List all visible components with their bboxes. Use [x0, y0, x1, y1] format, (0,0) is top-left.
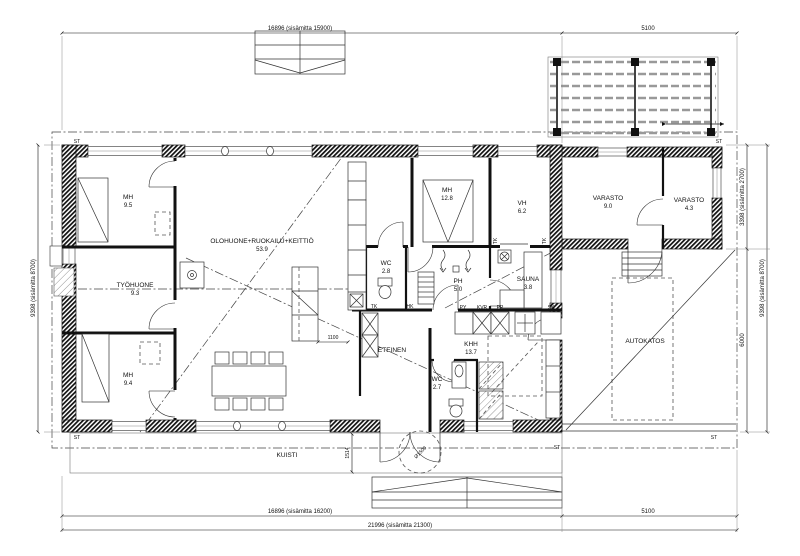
room-area: 9.5 — [124, 203, 133, 209]
room-label: MH — [123, 372, 133, 379]
room-label: VARASTO — [593, 195, 623, 202]
room-label: WC — [381, 260, 392, 267]
marker-hk: HK — [407, 304, 415, 310]
windows — [63, 147, 721, 431]
dim-top-main: 16896 (sisämitta 15900) — [268, 26, 332, 32]
shower — [441, 250, 445, 270]
room-area: 9.4 — [124, 381, 133, 387]
washbasin-counter — [452, 362, 466, 388]
chair — [251, 352, 265, 364]
chair — [215, 398, 229, 410]
night-table — [140, 342, 160, 364]
marker-sk: SK — [548, 305, 555, 311]
dim-right-total: 9398 (sisämitta 8700) — [760, 259, 766, 317]
marker-kvr: KVR — [477, 305, 488, 311]
room-label: WC — [432, 376, 443, 383]
floor-drain — [453, 266, 459, 272]
window-post — [222, 147, 229, 156]
marker-tk: TK — [371, 304, 378, 310]
khh-counter — [546, 340, 560, 418]
room-label: OLOHUONE+RUOKAILU+KEITTIÖ — [210, 237, 313, 245]
kitchen-island — [292, 267, 318, 341]
dim-island-clearance: 1100 — [328, 335, 339, 341]
shower — [466, 250, 470, 270]
room-label: PH — [453, 278, 462, 285]
room-area: 12.8 — [441, 196, 453, 202]
floor-plan-page: MH 9.5 TYÖHUONE 9.3 MH 9.4 OLOHUONE+RUOK… — [0, 0, 800, 556]
dim-porch-depth: 1514 — [345, 447, 351, 458]
chair — [269, 398, 283, 410]
room-label: VH — [517, 200, 526, 207]
chimney-block — [54, 268, 74, 296]
dining-table — [212, 366, 286, 396]
room-area: 6.2 — [518, 209, 527, 215]
room-area: 4.3 — [685, 206, 694, 212]
marker-tk: TK — [493, 237, 499, 244]
sauna-bench — [500, 290, 524, 308]
marker-st: ST — [74, 435, 80, 441]
room-label: MH — [442, 187, 452, 194]
chair — [233, 398, 247, 410]
floor-plan-drawing: MH 9.5 TYÖHUONE 9.3 MH 9.4 OLOHUONE+RUOK… — [0, 0, 800, 556]
marker-tk: TK — [542, 237, 548, 244]
fireplace — [180, 262, 204, 288]
marker-py: PY — [460, 305, 467, 311]
marker-st: ST — [74, 139, 80, 145]
room-label: MH — [123, 194, 133, 201]
room-area: 5.0 — [454, 287, 463, 293]
chair — [251, 398, 265, 410]
dim-bottom-right: 5100 — [641, 509, 655, 515]
room-label: ETEINEN — [378, 347, 406, 354]
dim-turning-circle: Ø1500 — [413, 445, 428, 460]
room-label: KUISTI — [277, 452, 298, 459]
chair — [215, 352, 229, 364]
appliance — [455, 312, 473, 334]
room-area: 13.7 — [465, 350, 477, 356]
room-label: VARASTO — [674, 197, 704, 204]
marker-st: ST — [554, 445, 560, 451]
dim-bottom-total: 21996 (sisämitta 21300) — [368, 523, 432, 529]
room-area: 9.3 — [131, 291, 140, 297]
room-area: 2.8 — [382, 269, 391, 275]
room-label: TYÖHUONE — [117, 281, 155, 289]
dim-top-right: 5100 — [641, 26, 655, 32]
bottom-entrance-steps — [372, 477, 562, 508]
top-entrance-steps — [255, 31, 345, 74]
left-wall-vent — [50, 246, 62, 266]
dim-right-upper: 3398 (sisämitta 2700) — [740, 168, 746, 226]
chair — [233, 352, 247, 364]
marker-pp: PP — [497, 305, 504, 311]
chair — [269, 352, 283, 364]
marker-st: ST — [711, 435, 717, 441]
room-area: 2.7 — [433, 385, 442, 391]
room-area: 3.8 — [524, 285, 533, 291]
room-label: SAUNA — [517, 276, 540, 283]
room-area: 53.9 — [256, 247, 268, 253]
site-boundary — [52, 132, 737, 448]
dim-bottom-main: 16896 (sisämitta 16200) — [268, 509, 332, 515]
toilet — [378, 278, 392, 286]
cleaning-closet — [541, 312, 561, 334]
porch-post — [234, 422, 241, 431]
porch-kuisti — [70, 433, 562, 473]
marker-st: ST — [716, 139, 722, 145]
pergola-trellis — [548, 57, 724, 137]
room-label: AUTOKATOS — [625, 338, 665, 345]
window-post — [267, 147, 274, 156]
night-table — [155, 212, 170, 235]
room-area: 9.0 — [604, 204, 613, 210]
kitchen-counter — [348, 200, 366, 310]
room-label: KHH — [464, 341, 478, 348]
porch-post — [279, 422, 286, 431]
labels: MH 9.5 TYÖHUONE 9.3 MH 9.4 OLOHUONE+RUOK… — [31, 26, 766, 529]
dim-right-lower: 6000 — [740, 333, 746, 347]
dim-left: 9398 (sisämitta 8700) — [31, 259, 37, 317]
